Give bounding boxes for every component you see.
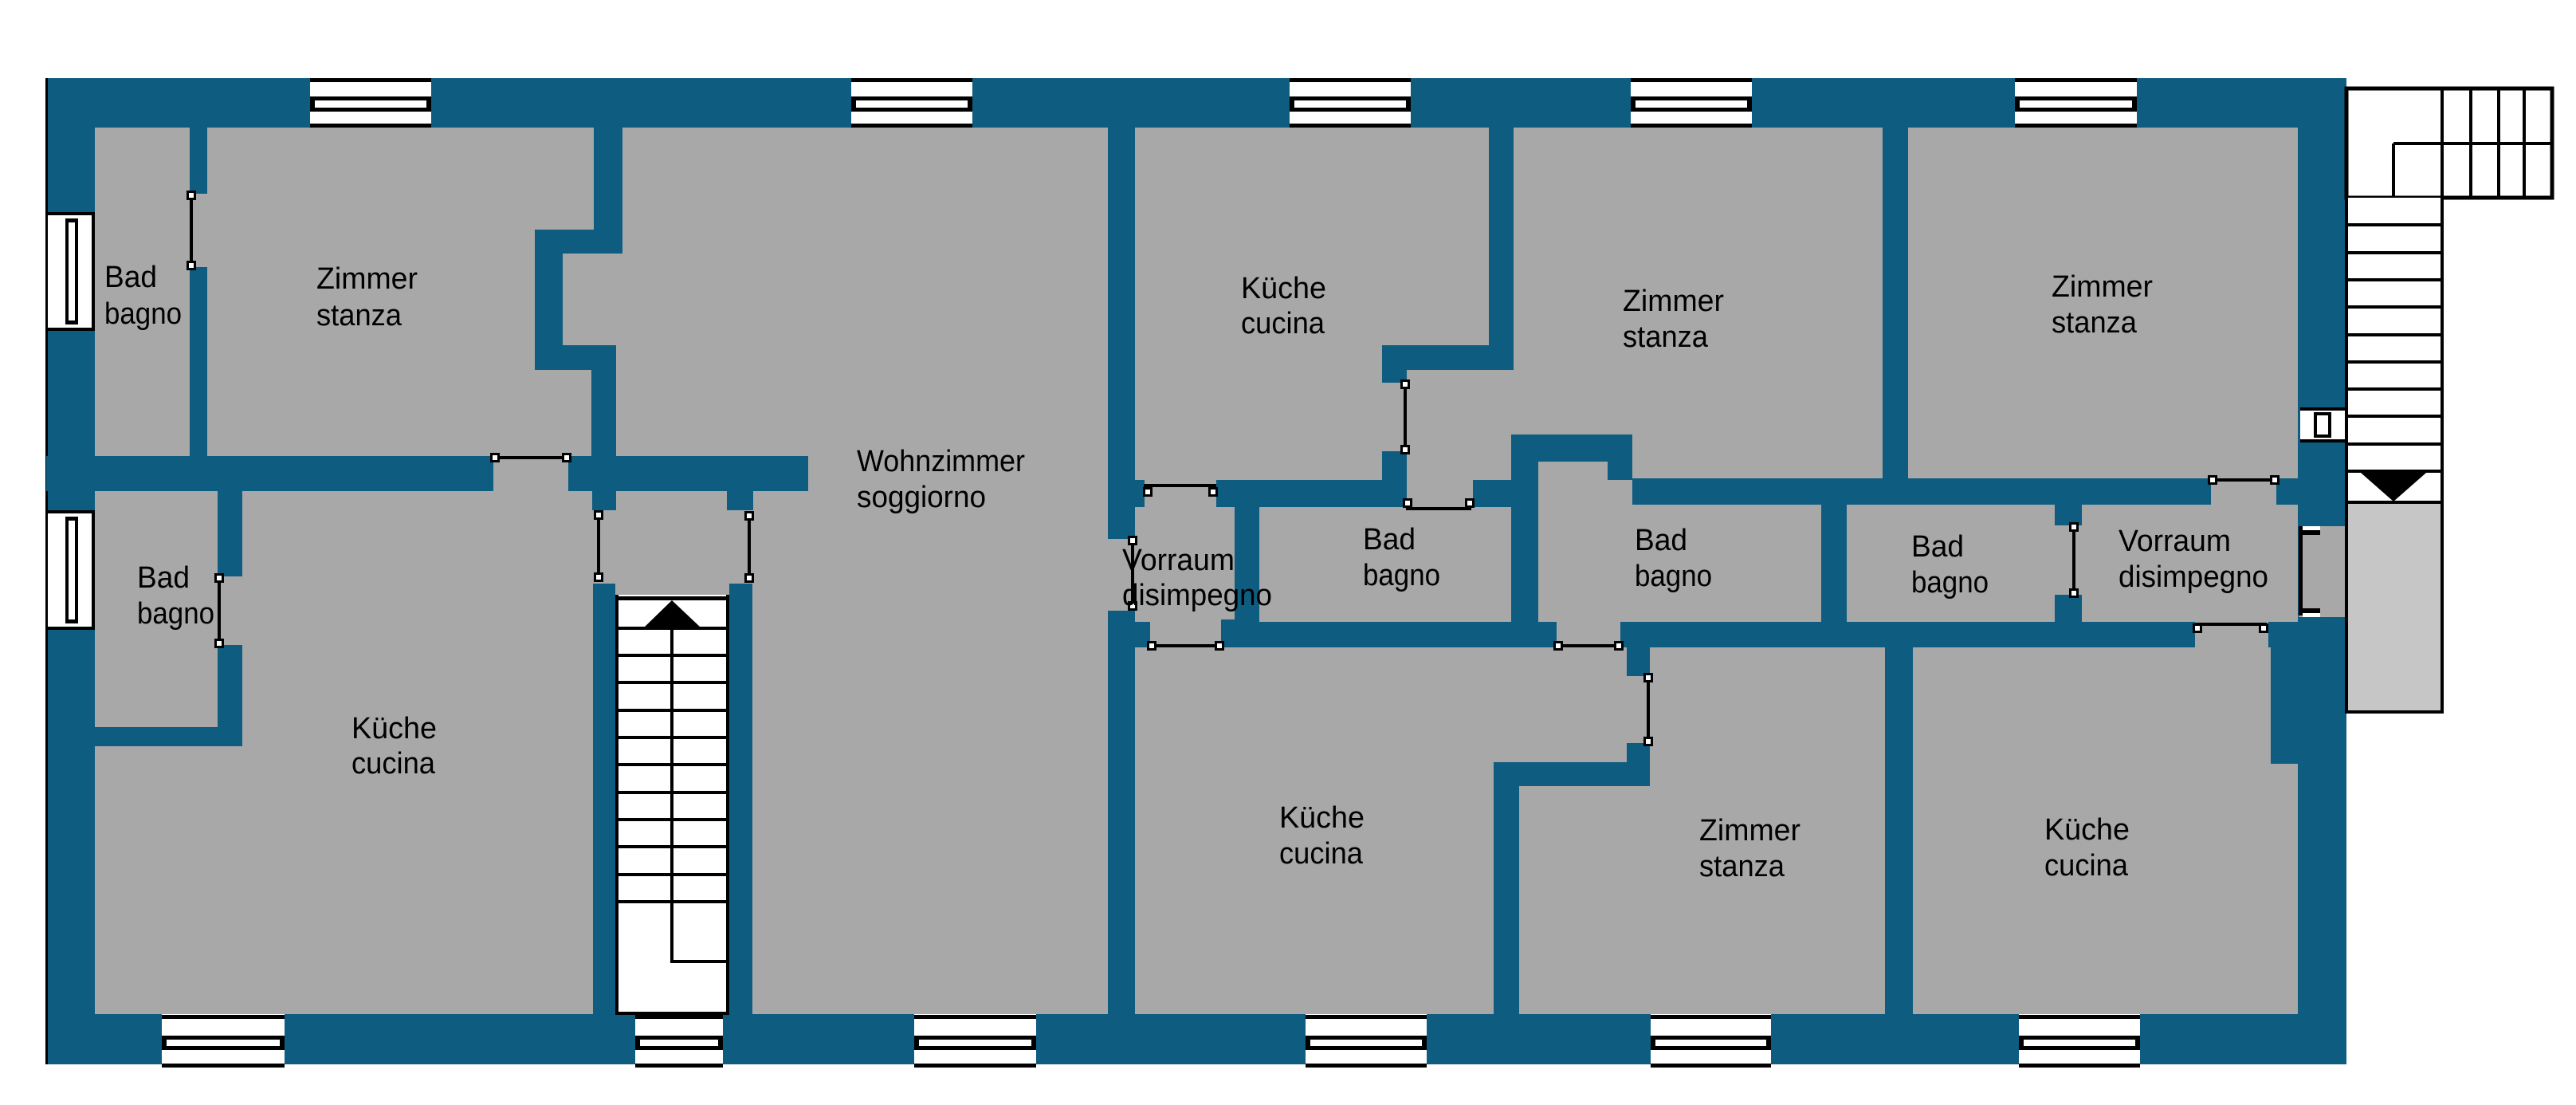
svg-text:Zimmer: Zimmer xyxy=(1623,285,1724,318)
svg-text:Küche: Küche xyxy=(1279,801,1365,835)
svg-text:Bad: Bad xyxy=(137,561,190,595)
svg-text:cucina: cucina xyxy=(1241,307,1325,340)
svg-text:bagno: bagno xyxy=(1363,559,1440,592)
svg-text:Zimmer: Zimmer xyxy=(316,262,418,296)
svg-text:bagno: bagno xyxy=(1635,560,1712,593)
svg-text:Zimmer: Zimmer xyxy=(1699,814,1800,847)
svg-text:Küche: Küche xyxy=(1241,272,1326,305)
svg-text:Wohnzimmer: Wohnzimmer xyxy=(857,445,1025,478)
svg-text:stanza: stanza xyxy=(1699,850,1785,883)
svg-text:stanza: stanza xyxy=(2052,306,2138,340)
svg-text:Küche: Küche xyxy=(351,712,437,745)
svg-text:stanza: stanza xyxy=(1623,320,1709,354)
svg-text:cucina: cucina xyxy=(351,747,436,781)
svg-text:Vorraum: Vorraum xyxy=(1122,544,1235,577)
svg-text:cucina: cucina xyxy=(2044,849,2129,883)
svg-text:soggiorno: soggiorno xyxy=(857,481,986,514)
svg-text:bagno: bagno xyxy=(137,597,214,631)
svg-text:disimpegno: disimpegno xyxy=(2119,560,2268,594)
svg-text:bagno: bagno xyxy=(104,297,182,331)
svg-text:Bad: Bad xyxy=(1911,530,1964,564)
svg-text:Bad: Bad xyxy=(1635,524,1687,557)
svg-text:stanza: stanza xyxy=(316,299,402,332)
svg-text:bagno: bagno xyxy=(1911,566,1989,600)
svg-text:disimpegno: disimpegno xyxy=(1122,579,1272,612)
svg-text:Zimmer: Zimmer xyxy=(2052,270,2153,304)
svg-text:Bad: Bad xyxy=(1363,523,1416,556)
svg-text:Küche: Küche xyxy=(2044,813,2130,847)
svg-text:Vorraum: Vorraum xyxy=(2119,525,2231,558)
svg-text:Bad: Bad xyxy=(104,261,157,294)
svg-text:cucina: cucina xyxy=(1279,837,1364,871)
